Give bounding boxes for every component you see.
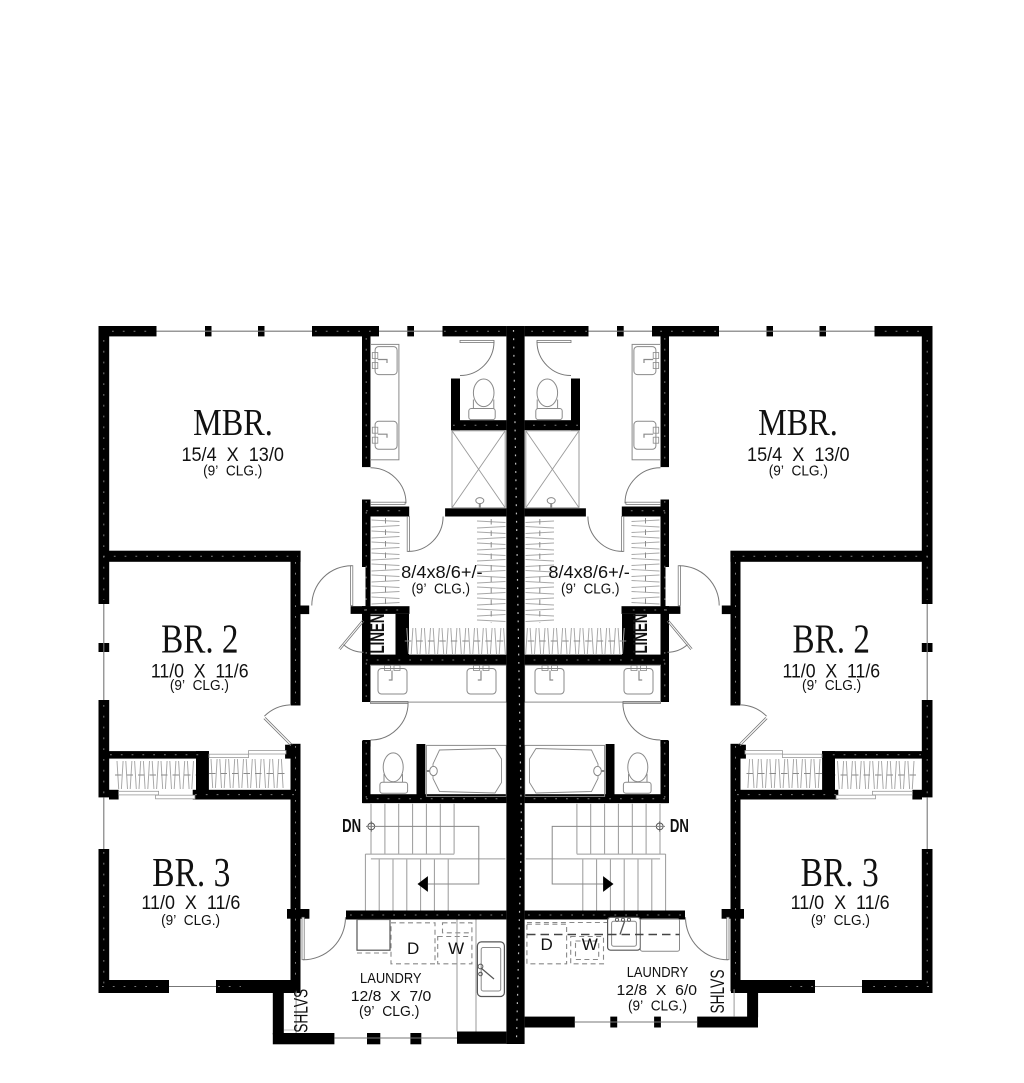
svg-text:BR. 2: BR. 2 [793, 615, 870, 661]
svg-text:11/0 X 11/6: 11/0 X 11/6 [791, 893, 890, 914]
svg-text:LAUNDRY: LAUNDRY [360, 971, 422, 987]
svg-text:MBR.: MBR. [758, 402, 838, 444]
svg-text:SHLVS: SHLVS [708, 970, 729, 1014]
svg-text:BR. 2: BR. 2 [161, 615, 238, 661]
svg-text:LINEN: LINEN [367, 614, 389, 654]
svg-text:8/4x8/6+/-: 8/4x8/6+/- [401, 562, 483, 582]
svg-text:DN: DN [342, 816, 361, 836]
svg-text:LAUNDRY: LAUNDRY [627, 965, 689, 981]
svg-text:BR. 3: BR. 3 [801, 849, 879, 895]
svg-text:(9’ CLG.): (9’ CLG.) [769, 463, 828, 480]
svg-text:DN: DN [670, 816, 689, 836]
svg-text:(9’ CLG.): (9’ CLG.) [811, 912, 870, 929]
svg-text:(9’ CLG.): (9’ CLG.) [561, 580, 620, 597]
svg-text:(9’ CLG.): (9’ CLG.) [628, 997, 687, 1014]
svg-text:D: D [407, 939, 419, 958]
svg-text:(9’ CLG.): (9’ CLG.) [359, 1003, 420, 1020]
svg-text:(9’ CLG.): (9’ CLG.) [170, 677, 229, 694]
svg-text:W: W [582, 935, 598, 954]
svg-text:BR. 3: BR. 3 [152, 849, 230, 895]
svg-text:11/0 X 11/6: 11/0 X 11/6 [141, 893, 240, 914]
svg-text:8/4x8/6+/-: 8/4x8/6+/- [548, 562, 630, 582]
svg-text:(9’ CLG.): (9’ CLG.) [161, 912, 220, 929]
svg-text:LINEN: LINEN [630, 614, 652, 654]
svg-text:(9’ CLG.): (9’ CLG.) [411, 580, 470, 597]
svg-text:SHLVS: SHLVS [291, 989, 312, 1033]
svg-text:W: W [448, 939, 464, 958]
svg-text:(9’ CLG.): (9’ CLG.) [203, 463, 262, 480]
svg-text:D: D [541, 935, 553, 954]
svg-text:(9’ CLG.): (9’ CLG.) [802, 677, 861, 694]
svg-text:MBR.: MBR. [193, 402, 273, 444]
